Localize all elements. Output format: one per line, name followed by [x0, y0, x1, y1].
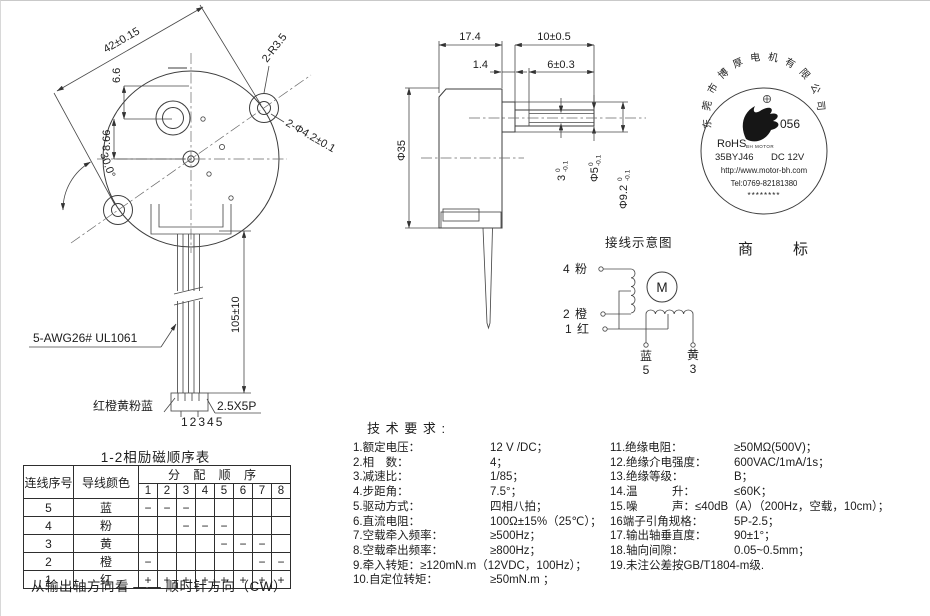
sequence-cell: − [253, 553, 272, 571]
sequence-cell [158, 517, 177, 535]
spec-value: 7.5°； [490, 486, 522, 498]
spec-value: 100Ω±15%（25℃）； [490, 516, 602, 528]
col-header-wire-number: 连线序号 [24, 466, 74, 499]
winding-a-coil [631, 269, 635, 313]
dim-shaft-length: 10±0.5 [537, 31, 571, 43]
sequence-cell [139, 517, 158, 535]
rohs-mark: RoHS [717, 138, 746, 150]
sequence-cell: − [139, 553, 158, 571]
model-number: 35BYJ46 [715, 152, 754, 163]
spec-item: 6.直流电阻：100Ω±15%（25℃）； [353, 515, 610, 530]
step-number: 6 [234, 484, 253, 499]
table-header-row: 连线序号 导线颜色 分 配 顺 序 [24, 466, 291, 484]
svg-text:0: 0 [617, 177, 624, 181]
spec-label: 2.相 数： [353, 456, 490, 471]
dim-boss-diameter: Φ9.2 0 -0.1 [617, 169, 632, 209]
spec-item: 2.相 数：4； [353, 456, 610, 471]
spec-label: 16端子引角规格： [610, 515, 734, 530]
spec-value: 0.05~0.5mm； [734, 545, 810, 557]
table-row: 3黄−−− [24, 535, 291, 553]
sequence-cell [139, 535, 158, 553]
stars-row: ******** [748, 191, 781, 200]
step-number: 8 [272, 484, 291, 499]
spec-value: ≥50MΩ(500V)； [734, 442, 817, 454]
spec-item: 7.空载牵入频率：≥500Hz； [353, 529, 610, 544]
motor-symbol: M [656, 280, 667, 295]
spec-item: 4.步距角：7.5°； [353, 485, 610, 500]
technical-requirements: 技 术 要 求 : 1.额定电压：12 V /DC；2.相 数：4；3.减速比：… [353, 418, 929, 588]
website: http://www.motor-bh.com [721, 166, 807, 175]
connector-spec-label: 2.5X5P [217, 399, 256, 413]
svg-text:3: 3 [556, 175, 568, 181]
sequence-cell [272, 535, 291, 553]
spec-label: 3.减速比： [353, 470, 490, 485]
sequence-cell [177, 535, 196, 553]
table-row: 5蓝−−− [24, 499, 291, 517]
dim-hole-distance: 42±0.15 [102, 25, 142, 55]
spec-label: 13.绝缘等级： [610, 470, 734, 485]
brand-small-text: BH MOTOR [746, 144, 774, 149]
side-view: 17.4 10±0.5 1.4 6±0.3 3 0 -0.1 Φ5 0 -0.1… [396, 31, 646, 328]
wire-spec-label: 5-AWG26# UL1061 [33, 331, 138, 345]
spec-label: 15.噪 声： [610, 500, 695, 515]
spec-value: B； [734, 471, 753, 483]
pin-numbers-label: 12345 [181, 415, 224, 429]
spec-label: 12.绝缘介电强度： [610, 456, 734, 471]
sequence-cell: − [139, 499, 158, 517]
sequence-cell [234, 553, 253, 571]
spec-item: 19.未注公差按GB/T1804-m级. [610, 559, 928, 574]
terminal-4-number: 4 [563, 262, 570, 276]
dim-body-depth: 17.4 [459, 31, 480, 43]
col-header-wire-color: 导线颜色 [74, 466, 139, 499]
terminal-2-color: 橙 [575, 306, 587, 321]
spec-label: 11.绝缘电阻： [610, 441, 734, 456]
svg-text:-0.1: -0.1 [596, 154, 603, 166]
wiring-title: 接线示意图 [605, 235, 673, 250]
svg-text:-0.1: -0.1 [625, 169, 632, 181]
spec-value: ≥120mN.m（12VDC，100Hz）； [420, 560, 587, 572]
wire-number-cell: 4 [24, 517, 74, 535]
spec-item: 15.噪 声：≤40dB（A）（200Hz，空载，10cm）； [610, 500, 928, 515]
spec-value: 90±1°； [734, 530, 776, 542]
step-number: 1 [139, 484, 158, 499]
excitation-sequence-table: 连线序号 导线颜色 分 配 顺 序 12345678 5蓝−−−4粉−−−3黄−… [23, 465, 291, 589]
spec-label: 8.空载牵出频率： [353, 544, 490, 559]
spec-item: 11.绝缘电阻：≥50MΩ(500V)； [610, 441, 928, 456]
terminal-3-number: 3 [690, 362, 697, 376]
stamp-number: 056 [780, 117, 800, 131]
sequence-cell [215, 553, 234, 571]
voltage-rating: DC 12V [771, 152, 805, 163]
wire-number-cell: 5 [24, 499, 74, 517]
spec-label: 9.牵入转矩： [353, 559, 420, 574]
spec-item: 17.输出轴垂直度：90±1°； [610, 529, 928, 544]
wiring-diagram: 接线示意图 4 粉 2 橙 1 红 M 蓝 5 黄 3 [563, 235, 699, 377]
dim-wire-length: 105±10 [230, 296, 242, 333]
col-header-order: 分 配 顺 序 [139, 466, 291, 484]
dim-boss-length: 1.4 [473, 59, 488, 71]
tech-title: 技 术 要 求 : [367, 418, 929, 437]
sequence-cell: − [158, 499, 177, 517]
spec-value: ≥500Hz； [490, 530, 541, 542]
sequence-cell [215, 499, 234, 517]
spec-label: 6.直流电阻： [353, 515, 490, 530]
sequence-cell: − [215, 535, 234, 553]
spec-item: 3.减速比：1/85； [353, 470, 610, 485]
terminal-5-color: 蓝 [640, 349, 652, 363]
wire-color-cell: 粉 [74, 517, 139, 535]
sequence-cell [158, 535, 177, 553]
sequence-cell [196, 535, 215, 553]
spec-item: 5.驱动方式：四相八拍； [353, 500, 610, 515]
dim-body-diameter: Φ35 [396, 140, 408, 161]
spec-item: 14.温 升：≤60K； [610, 485, 928, 500]
spec-item: 10.自定位转矩：≥50mN.m ； [353, 573, 610, 588]
step-number: 2 [158, 484, 177, 499]
sequence-cell [272, 517, 291, 535]
sequence-cell: − [272, 553, 291, 571]
wire-color-cell: 橙 [74, 553, 139, 571]
spec-item: 12.绝缘介电强度：600VAC/1mA/1s； [610, 456, 928, 471]
dim-offset-66: 6.6 [111, 68, 123, 83]
spec-item: 13.绝缘等级：B； [610, 470, 928, 485]
spec-label: 1.额定电压： [353, 441, 490, 456]
spec-value: 5P-2.5； [734, 516, 779, 528]
sequence-cell: − [177, 517, 196, 535]
dim-ear-radius: 2-R3.5 [260, 31, 290, 64]
lead-connector [171, 393, 208, 411]
terminal-2-number: 2 [563, 307, 570, 321]
dim-offset-866: 8.66 [101, 130, 113, 151]
svg-text:0: 0 [588, 162, 595, 166]
spec-item: 8.空载牵出频率：≥800Hz； [353, 544, 610, 559]
tech-col-right: 11.绝缘电阻：≥50MΩ(500V)；12.绝缘介电强度：600VAC/1mA… [610, 441, 928, 588]
spec-value: ≥800Hz； [490, 545, 541, 557]
svg-text:Φ5: Φ5 [589, 167, 601, 182]
sequence-table-title: 1-2相励磁顺序表 [23, 446, 288, 466]
spec-item: 16端子引角规格：5P-2.5； [610, 515, 928, 530]
step-number: 5 [215, 484, 234, 499]
rotation-direction-note: 从输出轴方向看 —— 顺时针方向（CW） [31, 575, 287, 595]
spec-item: 18.轴向间隙：0.05~0.5mm； [610, 544, 928, 559]
spec-label: 17.输出轴垂直度： [610, 529, 734, 544]
sequence-cell [253, 517, 272, 535]
spec-label: 4.步距角： [353, 485, 490, 500]
spec-item: 9.牵入转矩：≥120mN.m（12VDC，100Hz）； [353, 559, 610, 574]
motor-datasheet-drawing: 42±0.15 6.6 8.66 30.0° 2-R3.5 2-Φ4.2±0.1… [0, 0, 930, 616]
dim-mount-holes: 2-Φ4.2±0.1 [284, 117, 338, 155]
sequence-cell [196, 499, 215, 517]
spec-value: 4； [490, 457, 508, 469]
sequence-cell [234, 499, 253, 517]
sequence-cell [253, 499, 272, 517]
table-row: 4粉−−− [24, 517, 291, 535]
step-number: 7 [253, 484, 272, 499]
sequence-cell [234, 517, 253, 535]
dim-flat-width: 3 0 -0.1 [555, 160, 570, 181]
front-view: 42±0.15 6.6 8.66 30.0° 2-R3.5 2-Φ4.2±0.1… [29, 5, 337, 429]
sequence-cell [177, 553, 196, 571]
spec-label: 19.未注公差按GB/T1804-m级. [610, 559, 764, 574]
terminal-1-number: 1 [565, 322, 572, 336]
dim-shaft-diameter: Φ5 0 -0.1 [588, 154, 603, 182]
terminal-5-number: 5 [643, 363, 650, 377]
spec-item: 1.额定电压：12 V /DC； [353, 441, 610, 456]
engineering-drawing-canvas: 42±0.15 6.6 8.66 30.0° 2-R3.5 2-Φ4.2±0.1… [1, 1, 930, 441]
tech-col-left: 1.额定电压：12 V /DC；2.相 数：4；3.减速比：1/85；4.步距角… [353, 441, 610, 588]
sequence-cell: − [215, 517, 234, 535]
svg-text:Φ9.2: Φ9.2 [618, 185, 630, 209]
spec-label: 18.轴向间隙： [610, 544, 734, 559]
step-number: 4 [196, 484, 215, 499]
spec-label: 14.温 升： [610, 485, 734, 500]
spec-value: 600VAC/1mA/1s； [734, 457, 830, 469]
dim-flat-length: 6±0.3 [547, 59, 574, 71]
spec-value: ≤40dB（A）（200Hz，空载，10cm）； [695, 501, 889, 513]
spec-label: 5.驱动方式： [353, 500, 490, 515]
spec-value: ≥50mN.m ； [490, 574, 554, 586]
spec-value: 1/85； [490, 471, 524, 483]
svg-text:-0.1: -0.1 [563, 160, 570, 172]
sequence-cell [158, 553, 177, 571]
trademark-label: 商标 [738, 241, 848, 258]
terminal-3-color: 黄 [687, 348, 699, 362]
svg-text:0: 0 [555, 168, 562, 172]
terminal-1-color: 红 [577, 321, 589, 336]
spec-value: 四相八拍； [490, 501, 548, 513]
wire-number-cell: 3 [24, 535, 74, 553]
wire-color-cell: 黄 [74, 535, 139, 553]
sequence-cell [272, 499, 291, 517]
sequence-cell: − [196, 517, 215, 535]
sequence-cell [196, 553, 215, 571]
bird-logo-icon [743, 106, 779, 141]
terminal-4-color: 粉 [575, 262, 587, 276]
sequence-cell: − [234, 535, 253, 553]
table-row: 2橙−−− [24, 553, 291, 571]
spec-label: 7.空载牵入频率： [353, 529, 490, 544]
sequence-cell: − [253, 535, 272, 553]
wire-number-cell: 2 [24, 553, 74, 571]
wire-color-cell: 蓝 [74, 499, 139, 517]
spec-label: 10.自定位转矩： [353, 573, 490, 588]
trademark-stamp: 东莞市博厚电机有限公司 056 RoHS BH MOTOR 35BYJ46 DC… [699, 50, 848, 258]
sequence-cell: − [177, 499, 196, 517]
spec-value: 12 V /DC； [490, 442, 548, 454]
wire-colors-label: 红橙黄粉蓝 [93, 398, 153, 413]
spec-value: ≤60K； [734, 486, 772, 498]
step-number: 3 [177, 484, 196, 499]
phone: Tel:0769-82181380 [731, 179, 798, 188]
winding-b-coil [646, 310, 693, 314]
